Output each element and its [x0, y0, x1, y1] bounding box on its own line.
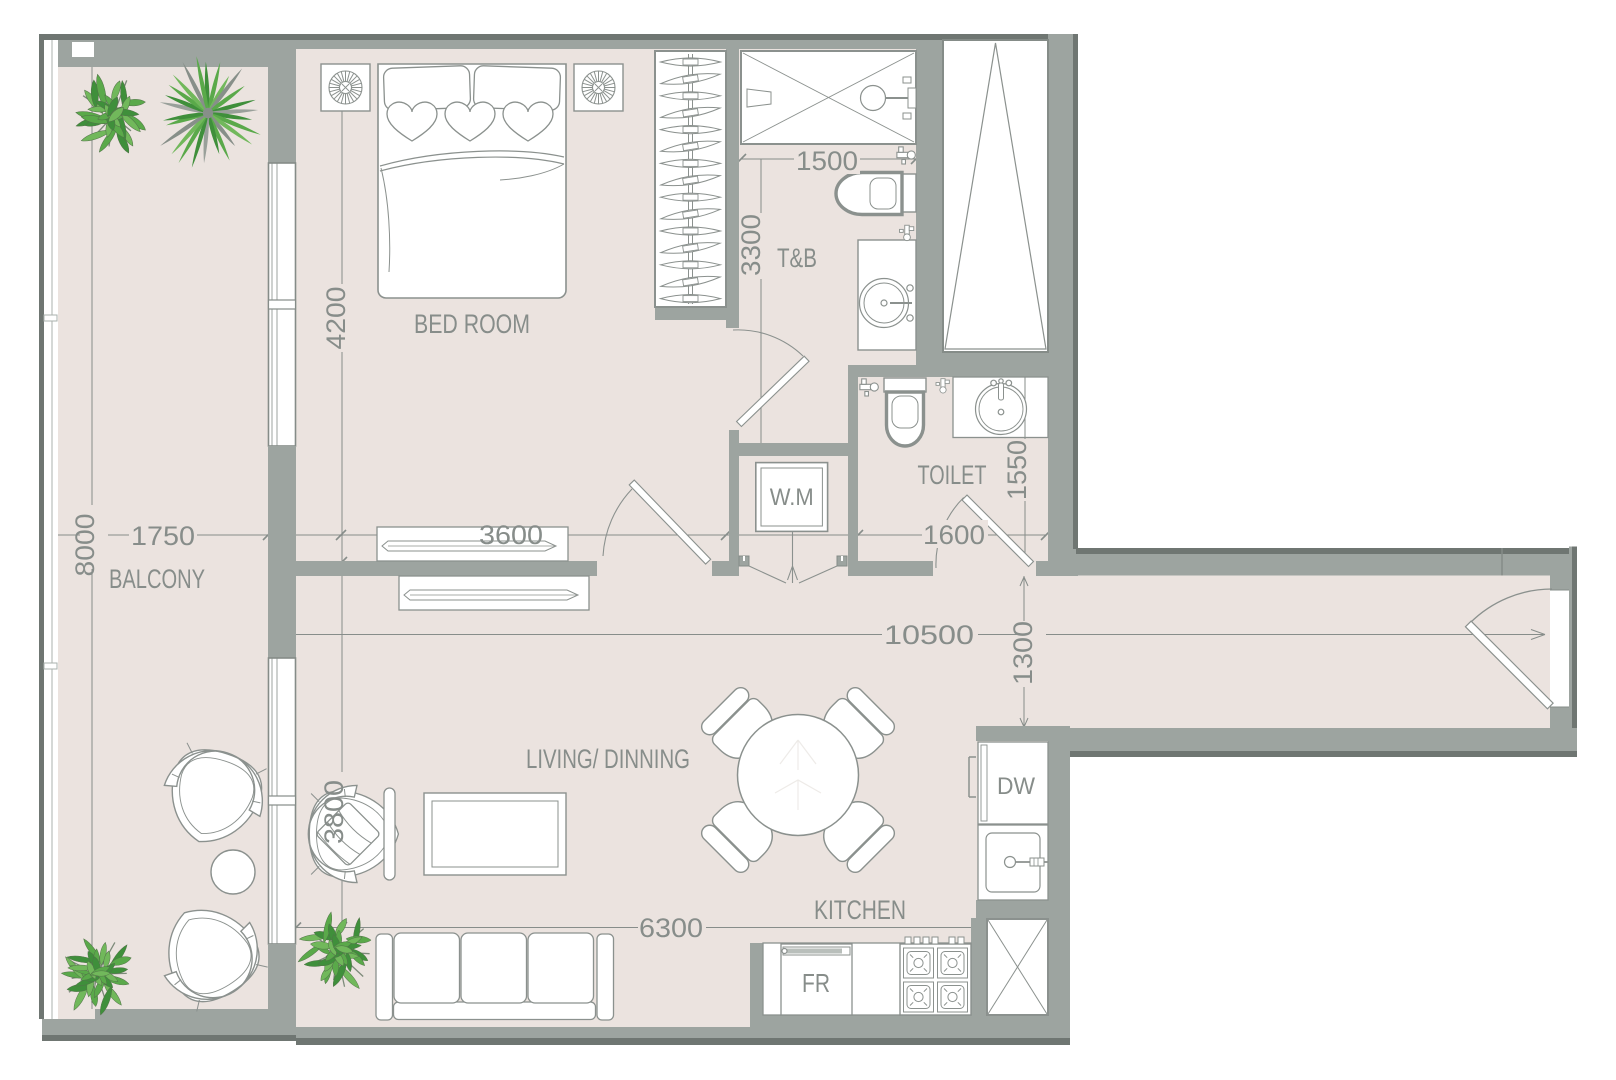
svg-text:1500: 1500: [796, 146, 858, 176]
svg-text:1600: 1600: [923, 520, 985, 550]
svg-text:3300: 3300: [736, 214, 766, 276]
svg-text:T&B: T&B: [777, 243, 817, 273]
svg-text:BALCONY: BALCONY: [109, 564, 205, 594]
svg-text:TOILET: TOILET: [918, 460, 987, 490]
svg-text:LIVING/ DINNING: LIVING/ DINNING: [526, 744, 690, 774]
svg-text:3600: 3600: [479, 520, 543, 550]
svg-text:BED ROOM: BED ROOM: [414, 309, 530, 339]
svg-text:3800: 3800: [319, 780, 349, 844]
svg-text:4200: 4200: [321, 287, 351, 350]
svg-text:1300: 1300: [1008, 621, 1038, 685]
svg-text:DW: DW: [997, 773, 1035, 800]
svg-text:W.M: W.M: [770, 484, 814, 511]
svg-text:1750: 1750: [131, 521, 195, 551]
svg-text:10500: 10500: [884, 620, 974, 650]
svg-text:6300: 6300: [639, 913, 703, 943]
svg-text:FR: FR: [802, 968, 830, 998]
svg-text:KITCHEN: KITCHEN: [814, 895, 906, 925]
svg-text:8000: 8000: [70, 514, 100, 577]
svg-text:1550: 1550: [1002, 440, 1032, 500]
